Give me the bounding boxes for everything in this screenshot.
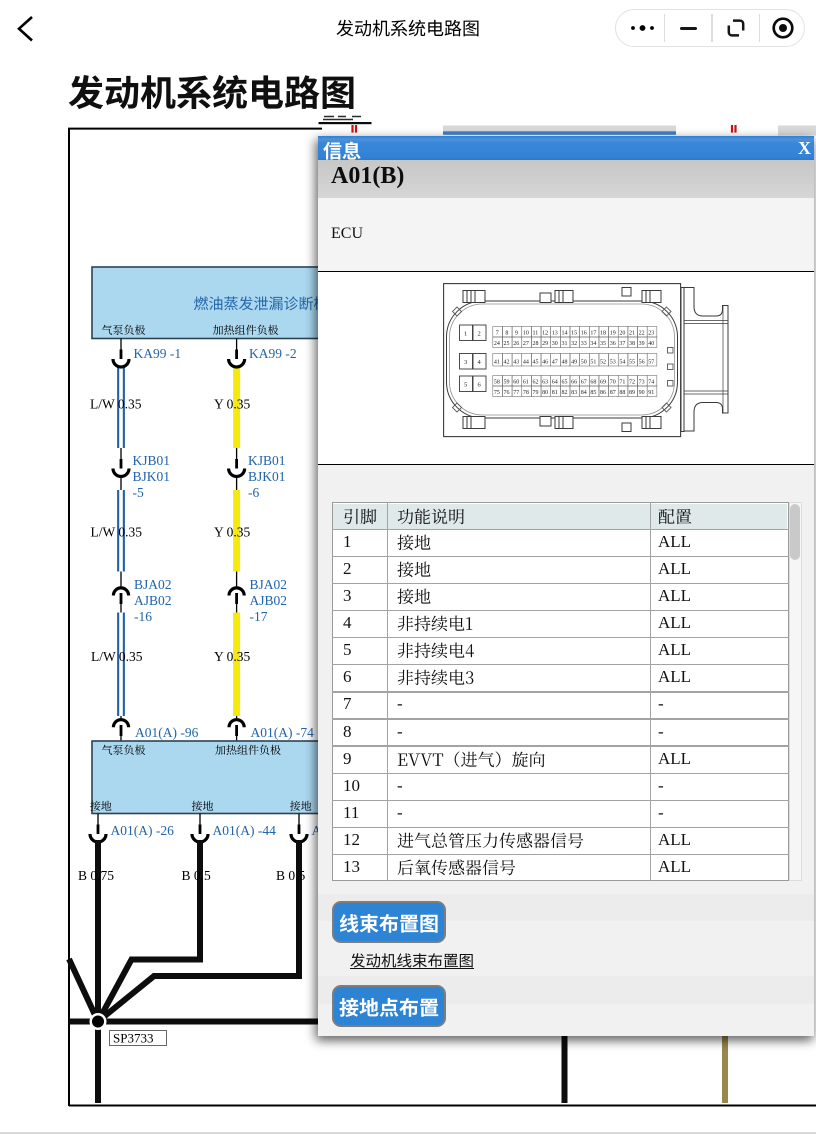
svg-text:21: 21 bbox=[629, 331, 635, 337]
svg-text:22: 22 bbox=[639, 331, 645, 337]
svg-text:79: 79 bbox=[533, 390, 539, 396]
svg-text:Y 0.35: Y 0.35 bbox=[214, 649, 250, 664]
svg-text:34: 34 bbox=[590, 341, 596, 347]
svg-text:20: 20 bbox=[619, 331, 625, 337]
svg-text:2: 2 bbox=[478, 331, 481, 338]
svg-text:27: 27 bbox=[523, 341, 529, 347]
svg-text:66: 66 bbox=[571, 380, 577, 386]
svg-text:52: 52 bbox=[600, 360, 606, 366]
svg-text:4: 4 bbox=[478, 359, 482, 366]
svg-text:49: 49 bbox=[571, 360, 577, 366]
svg-text:68: 68 bbox=[590, 380, 596, 386]
svg-text:33: 33 bbox=[581, 341, 587, 347]
svg-text:39: 39 bbox=[639, 341, 645, 347]
svg-text:KJB01: KJB01 bbox=[248, 453, 286, 468]
svg-text:77: 77 bbox=[513, 390, 519, 396]
svg-text:A01(A) -44: A01(A) -44 bbox=[213, 823, 277, 838]
svg-text:85: 85 bbox=[590, 390, 596, 396]
svg-text:51: 51 bbox=[590, 360, 596, 366]
svg-text:81: 81 bbox=[552, 390, 558, 396]
svg-text:19: 19 bbox=[610, 331, 616, 337]
svg-text:50: 50 bbox=[581, 360, 587, 366]
svg-text:45: 45 bbox=[533, 360, 539, 366]
svg-text:B 0.5: B 0.5 bbox=[276, 868, 306, 883]
svg-text:89: 89 bbox=[629, 390, 635, 396]
svg-text:71: 71 bbox=[619, 380, 625, 386]
svg-text:54: 54 bbox=[619, 360, 625, 366]
svg-text:A01(A) -96: A01(A) -96 bbox=[135, 725, 199, 740]
svg-text:41: 41 bbox=[494, 360, 500, 366]
svg-text:38: 38 bbox=[629, 341, 635, 347]
svg-text:83: 83 bbox=[571, 390, 577, 396]
svg-text:32: 32 bbox=[571, 341, 577, 347]
svg-text:46: 46 bbox=[542, 360, 548, 366]
svg-text:91: 91 bbox=[648, 390, 654, 396]
svg-text:57: 57 bbox=[648, 360, 654, 366]
svg-text:L/W 0.35: L/W 0.35 bbox=[90, 397, 142, 412]
svg-text:65: 65 bbox=[561, 380, 567, 386]
svg-text:Y 0.35: Y 0.35 bbox=[214, 397, 250, 412]
svg-text:6: 6 bbox=[478, 382, 482, 389]
svg-text:10: 10 bbox=[523, 331, 529, 337]
svg-text:58: 58 bbox=[494, 380, 500, 386]
svg-text:53: 53 bbox=[610, 360, 616, 366]
svg-text:59: 59 bbox=[504, 380, 510, 386]
svg-text:14: 14 bbox=[561, 331, 567, 337]
svg-text:AJB02: AJB02 bbox=[134, 593, 172, 608]
svg-text:61: 61 bbox=[523, 380, 529, 386]
svg-text:80: 80 bbox=[542, 390, 548, 396]
svg-text:B 0.75: B 0.75 bbox=[78, 868, 114, 883]
svg-text:72: 72 bbox=[629, 380, 635, 386]
svg-text:13: 13 bbox=[552, 331, 558, 337]
svg-text:29: 29 bbox=[542, 341, 548, 347]
svg-text:36: 36 bbox=[610, 341, 616, 347]
svg-text:L/W 0.35: L/W 0.35 bbox=[91, 525, 143, 540]
svg-text:74: 74 bbox=[648, 380, 654, 386]
svg-text:60: 60 bbox=[513, 380, 519, 386]
svg-text:KJB01: KJB01 bbox=[133, 453, 171, 468]
svg-text:35: 35 bbox=[600, 341, 606, 347]
svg-text:62: 62 bbox=[533, 380, 539, 386]
svg-text:A01(A) -74: A01(A) -74 bbox=[251, 725, 315, 740]
svg-text:24: 24 bbox=[494, 341, 500, 347]
svg-text:BJK01: BJK01 bbox=[248, 469, 286, 484]
svg-text:48: 48 bbox=[561, 360, 567, 366]
svg-text:88: 88 bbox=[619, 390, 625, 396]
svg-text:KA99 -2: KA99 -2 bbox=[249, 346, 297, 361]
svg-text:73: 73 bbox=[639, 380, 645, 386]
svg-text:9: 9 bbox=[515, 331, 518, 337]
svg-text:L/W 0.35: L/W 0.35 bbox=[91, 649, 143, 664]
svg-text:37: 37 bbox=[619, 341, 625, 347]
svg-text:69: 69 bbox=[600, 380, 606, 386]
svg-text:-16: -16 bbox=[134, 609, 152, 624]
svg-text:BJK01: BJK01 bbox=[133, 469, 171, 484]
svg-text:18: 18 bbox=[600, 331, 606, 337]
svg-text:KA99 -1: KA99 -1 bbox=[134, 346, 182, 361]
svg-text:-5: -5 bbox=[133, 485, 144, 500]
svg-text:75: 75 bbox=[494, 390, 500, 396]
svg-text:87: 87 bbox=[610, 390, 616, 396]
svg-text:Y 0.35: Y 0.35 bbox=[214, 525, 250, 540]
svg-text:3: 3 bbox=[464, 359, 467, 366]
svg-text:64: 64 bbox=[552, 380, 558, 386]
svg-text:11: 11 bbox=[533, 331, 539, 337]
svg-text:28: 28 bbox=[533, 341, 539, 347]
svg-text:17: 17 bbox=[590, 331, 596, 337]
svg-text:82: 82 bbox=[561, 390, 567, 396]
svg-text:5: 5 bbox=[464, 382, 467, 389]
svg-text:8: 8 bbox=[505, 331, 508, 337]
svg-text:25: 25 bbox=[504, 341, 510, 347]
svg-text:86: 86 bbox=[600, 390, 606, 396]
svg-text:-17: -17 bbox=[250, 609, 268, 624]
svg-text:1: 1 bbox=[464, 331, 467, 338]
svg-text:63: 63 bbox=[542, 380, 548, 386]
svg-text:AJB02: AJB02 bbox=[250, 593, 288, 608]
svg-text:55: 55 bbox=[629, 360, 635, 366]
svg-text:31: 31 bbox=[561, 341, 567, 347]
svg-text:42: 42 bbox=[504, 360, 510, 366]
svg-text:90: 90 bbox=[639, 390, 645, 396]
svg-text:40: 40 bbox=[648, 341, 654, 347]
svg-text:12: 12 bbox=[542, 331, 548, 337]
svg-text:43: 43 bbox=[513, 360, 519, 366]
svg-text:BJA02: BJA02 bbox=[250, 577, 288, 592]
svg-text:70: 70 bbox=[610, 380, 616, 386]
svg-text:15: 15 bbox=[571, 331, 577, 337]
svg-text:84: 84 bbox=[581, 390, 587, 396]
svg-text:7: 7 bbox=[496, 331, 499, 337]
svg-text:B 0.5: B 0.5 bbox=[182, 868, 212, 883]
svg-text:76: 76 bbox=[504, 390, 510, 396]
svg-text:-6: -6 bbox=[248, 485, 259, 500]
svg-text:47: 47 bbox=[552, 360, 558, 366]
svg-text:A01(A) -26: A01(A) -26 bbox=[111, 823, 175, 838]
svg-text:SP3733: SP3733 bbox=[113, 1031, 153, 1046]
svg-text:44: 44 bbox=[523, 360, 529, 366]
svg-text:78: 78 bbox=[523, 390, 529, 396]
svg-text:BJA02: BJA02 bbox=[134, 577, 172, 592]
svg-text:16: 16 bbox=[581, 331, 587, 337]
svg-text:30: 30 bbox=[552, 341, 558, 347]
svg-text:56: 56 bbox=[639, 360, 645, 366]
svg-text:23: 23 bbox=[648, 331, 654, 337]
svg-text:26: 26 bbox=[513, 341, 519, 347]
svg-text:67: 67 bbox=[581, 380, 587, 386]
